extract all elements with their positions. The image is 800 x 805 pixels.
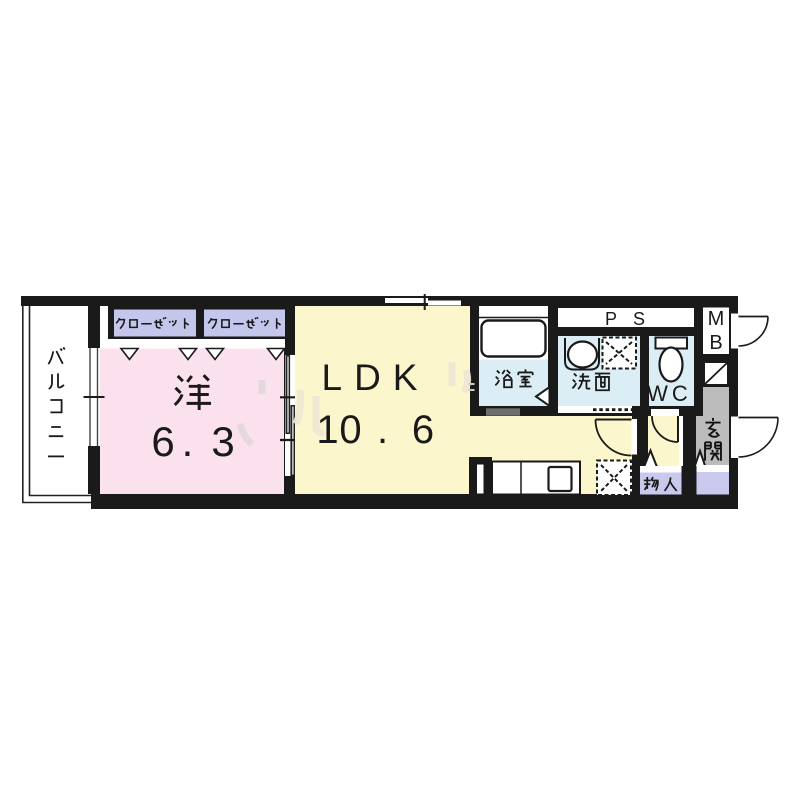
svg-text:.: . bbox=[182, 418, 194, 465]
svg-text:1: 1 bbox=[316, 408, 338, 452]
svg-text:B: B bbox=[709, 332, 722, 354]
svg-text:.: . bbox=[377, 408, 388, 452]
svg-text:0: 0 bbox=[339, 408, 361, 452]
svg-text:3: 3 bbox=[211, 418, 234, 465]
svg-text:M: M bbox=[708, 308, 725, 330]
svg-text:LDK: LDK bbox=[322, 357, 430, 398]
svg-text:S: S bbox=[633, 309, 645, 329]
svg-text:6: 6 bbox=[151, 418, 174, 465]
svg-text:P: P bbox=[605, 309, 617, 329]
svg-text:6: 6 bbox=[412, 408, 434, 452]
svg-text:WC: WC bbox=[647, 381, 692, 406]
